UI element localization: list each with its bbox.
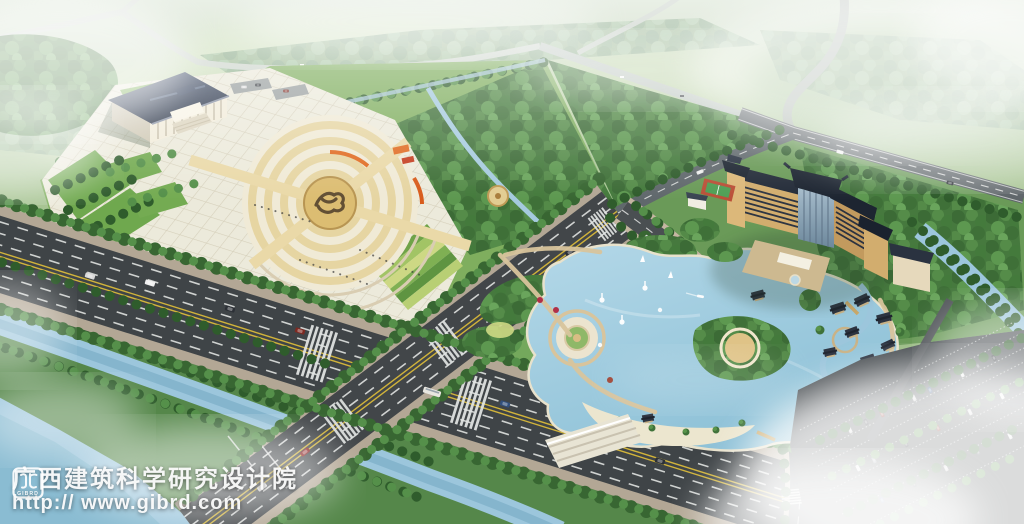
institute-name: 广西建筑科学研究设计院 (12, 467, 298, 493)
website-url: http:// www.gibrd.com (12, 493, 298, 515)
aerial-rendering: GIBRD 广西建筑科学研究设计院 http:// www.gibrd.com (0, 0, 1024, 524)
gibrd-logo-icon: GIBRD (12, 467, 44, 499)
rendering-canvas (0, 0, 1024, 524)
watermark: GIBRD 广西建筑科学研究设计院 http:// www.gibrd.com (12, 467, 298, 515)
logo-text: GIBRD (17, 491, 39, 497)
